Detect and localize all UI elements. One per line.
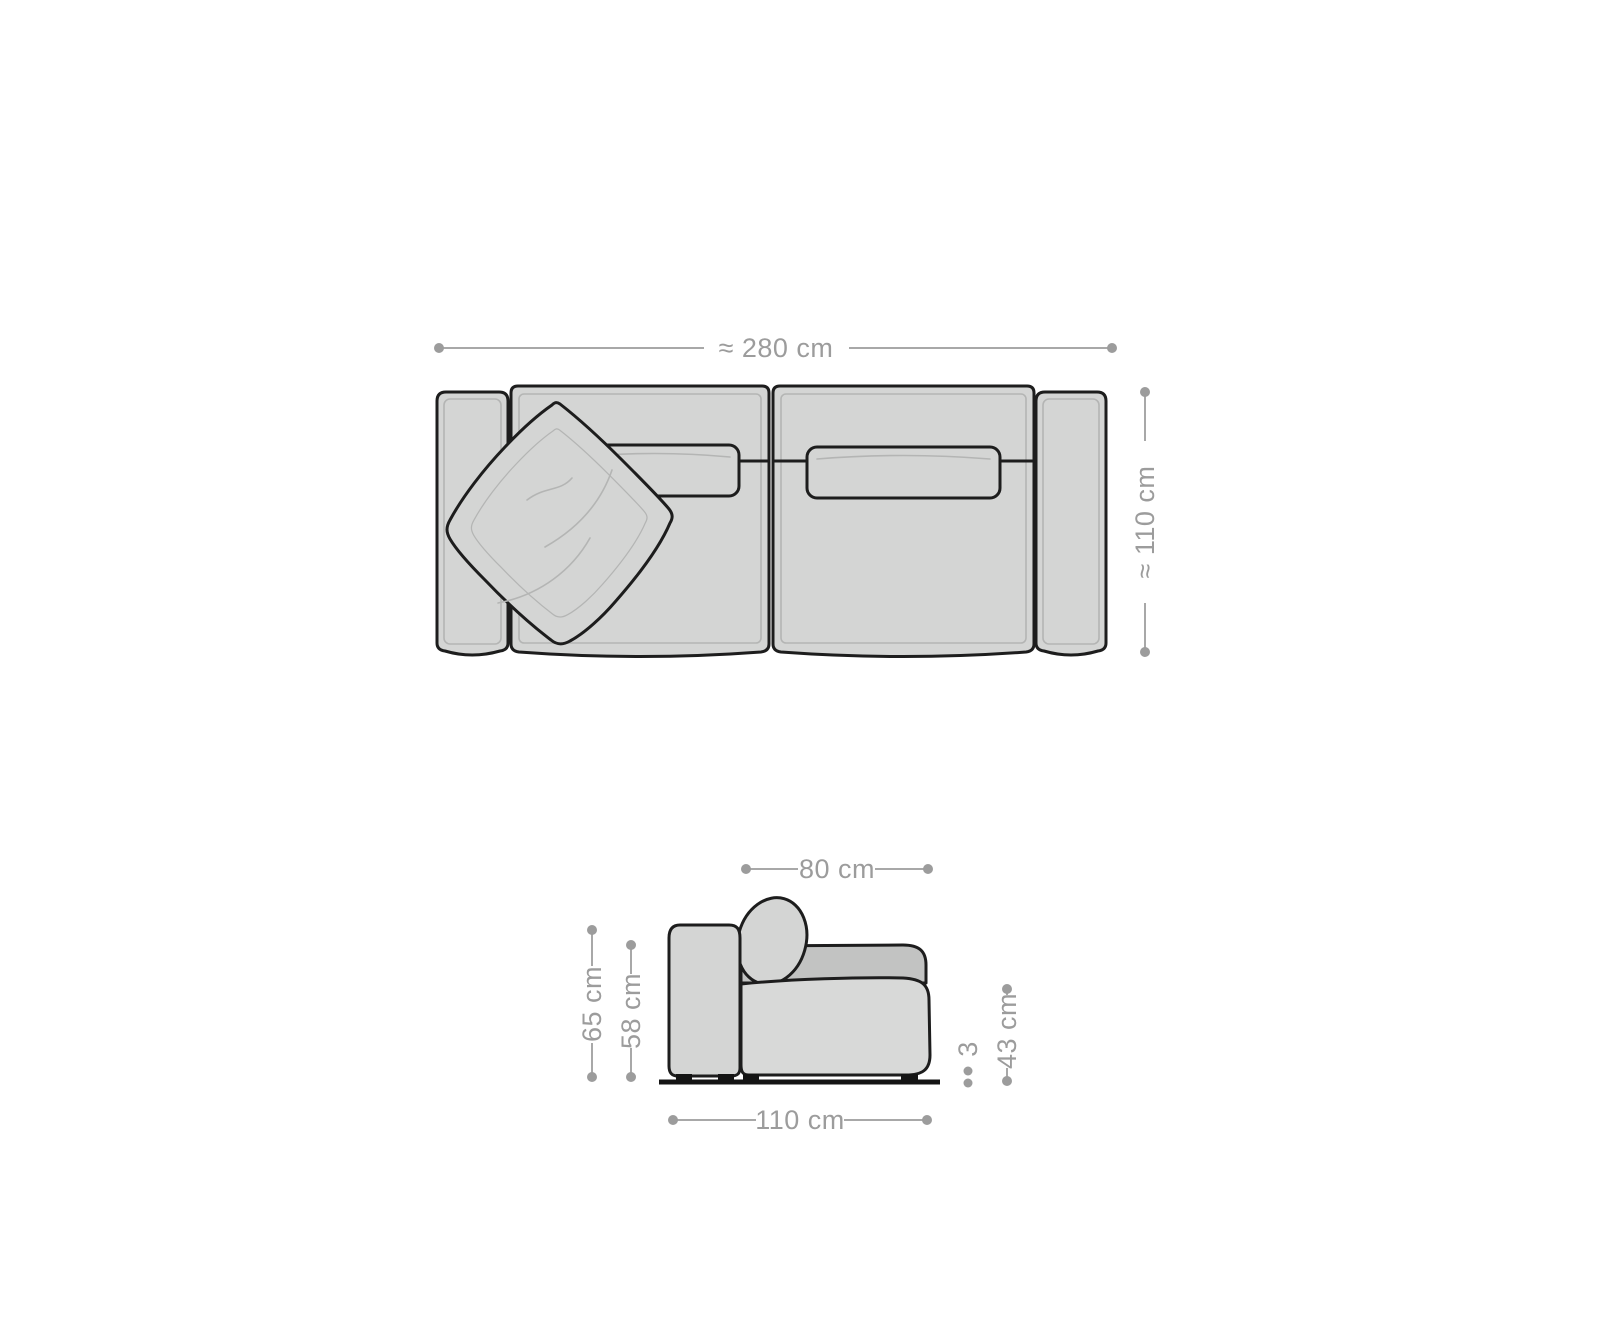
dimension-endpoint [587, 1072, 597, 1082]
top-view-depth-dimension: ≈ 110 cm [1130, 387, 1160, 657]
armrest-side-view [669, 925, 740, 1076]
dimension-endpoint [626, 940, 636, 950]
dimension-endpoint [434, 343, 444, 353]
sofa-dimension-diagram: ≈ 280 cm ≈ 110 cm [0, 0, 1600, 1333]
seat-module-right [773, 386, 1034, 657]
right-armrest-top-view [1036, 392, 1106, 655]
dimension-endpoint [587, 925, 597, 935]
dimension-endpoint [668, 1115, 678, 1125]
seat-height-label: 43 cm [992, 993, 1022, 1069]
feet-height-label: 3 [953, 1041, 983, 1057]
seat-depth-label: 80 cm [799, 854, 875, 884]
dimension-endpoint [964, 1079, 973, 1088]
top-view-width-dimension: ≈ 280 cm [434, 333, 1117, 363]
dimension-endpoint [1140, 387, 1150, 397]
top-view-depth-label: ≈ 110 cm [1130, 466, 1160, 579]
seat-body-side-view [741, 978, 930, 1075]
back-height-dimension: 58 cm [616, 940, 646, 1082]
seat-height-dimension: 43 cm [992, 984, 1022, 1086]
top-view-width-label: ≈ 280 cm [719, 333, 834, 363]
armrest-height-dimension: 65 cm [577, 925, 607, 1082]
top-view: ≈ 280 cm ≈ 110 cm [434, 333, 1160, 657]
back-cushion-right-top-view [807, 447, 1000, 498]
dimension-endpoint [1002, 984, 1012, 994]
dimension-endpoint [923, 864, 933, 874]
dimension-endpoint [1107, 343, 1117, 353]
seat-depth-dimension: 80 cm [741, 854, 933, 884]
side-view: 80 cm [577, 854, 1022, 1135]
total-depth-label: 110 cm [755, 1105, 845, 1135]
dimension-endpoint [1002, 1076, 1012, 1086]
armrest-height-label: 65 cm [577, 966, 607, 1042]
dimension-endpoint [1140, 647, 1150, 657]
dimension-endpoint [626, 1072, 636, 1082]
dimension-endpoint [964, 1067, 973, 1076]
dimension-endpoint [922, 1115, 932, 1125]
back-cushion [807, 447, 1000, 498]
back-height-label: 58 cm [616, 973, 646, 1049]
feet-height-dimension: 3 [953, 1041, 983, 1087]
dimension-endpoint [741, 864, 751, 874]
total-depth-dimension: 110 cm [668, 1105, 932, 1135]
diagram-canvas: ≈ 280 cm ≈ 110 cm [0, 0, 1600, 1333]
